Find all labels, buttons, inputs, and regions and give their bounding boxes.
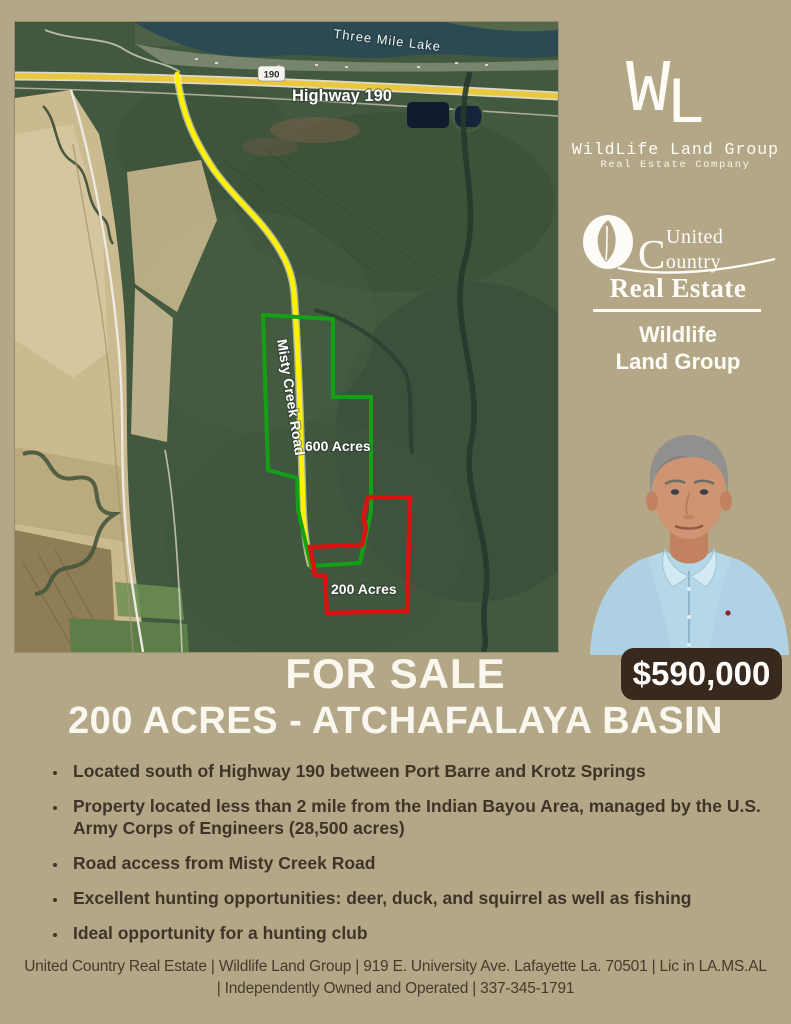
uc-division-line2: Land Group [578,349,778,375]
price-value: $590,000 [633,655,771,693]
parcel-600-label: 600 Acres [305,438,371,454]
polo-logo [725,610,730,615]
route-190-shield: 190 [258,66,285,81]
property-map: 190 Three Mile Lake Highway 190 Misty Cr… [15,22,558,652]
wildlife-land-group-logo: W L WildLife Land Group Real Estate Comp… [560,60,791,172]
uc-divider-rule [593,309,761,312]
property-headline: 200 ACRES - ATCHAFALAYA BASIN [0,700,791,743]
feature-item-indian-bayou: Property located less than 2 mile from t… [68,795,791,840]
wl-logo-tagline: Real Estate Company [560,159,791,171]
flyer: 190 Three Mile Lake Highway 190 Misty Cr… [0,0,791,1024]
route-shield-number: 190 [264,70,280,81]
aerial-map-graphic: 190 Three Mile Lake Highway 190 Misty Cr… [15,22,558,652]
parcel-200-label: 200 Acres [331,581,397,597]
price-badge: $590,000 [621,648,782,700]
wl-logo-name: WildLife Land Group [560,140,791,159]
footer-line2: | Independently Owned and Operated | 337… [0,978,791,1000]
uc-word-real-estate: Real Estate [578,273,778,304]
property-features-list: Located south of Highway 190 between Por… [42,760,791,957]
uc-division-line1: Wildlife [578,322,778,348]
uc-word-country: Country [638,240,721,274]
united-country-logo: United Country Real Estate Wildlife Land… [578,212,778,384]
feature-item-hunting-club: Ideal opportunity for a hunting club [68,922,791,944]
contact-footer: United Country Real Estate | Wildlife La… [0,956,791,1000]
agent-portrait [588,413,791,655]
feature-item-hunting: Excellent hunting opportunities: deer, d… [68,887,791,909]
footer-line1: United Country Real Estate | Wildlife La… [0,956,791,978]
wl-monogram-l: L [666,72,706,138]
feature-item-location: Located south of Highway 190 between Por… [68,760,791,782]
wl-monogram-w: W [626,54,670,128]
highway-label: Highway 190 [292,87,392,105]
feature-item-road-access: Road access from Misty Creek Road [68,852,791,874]
agent-photo [588,413,791,655]
